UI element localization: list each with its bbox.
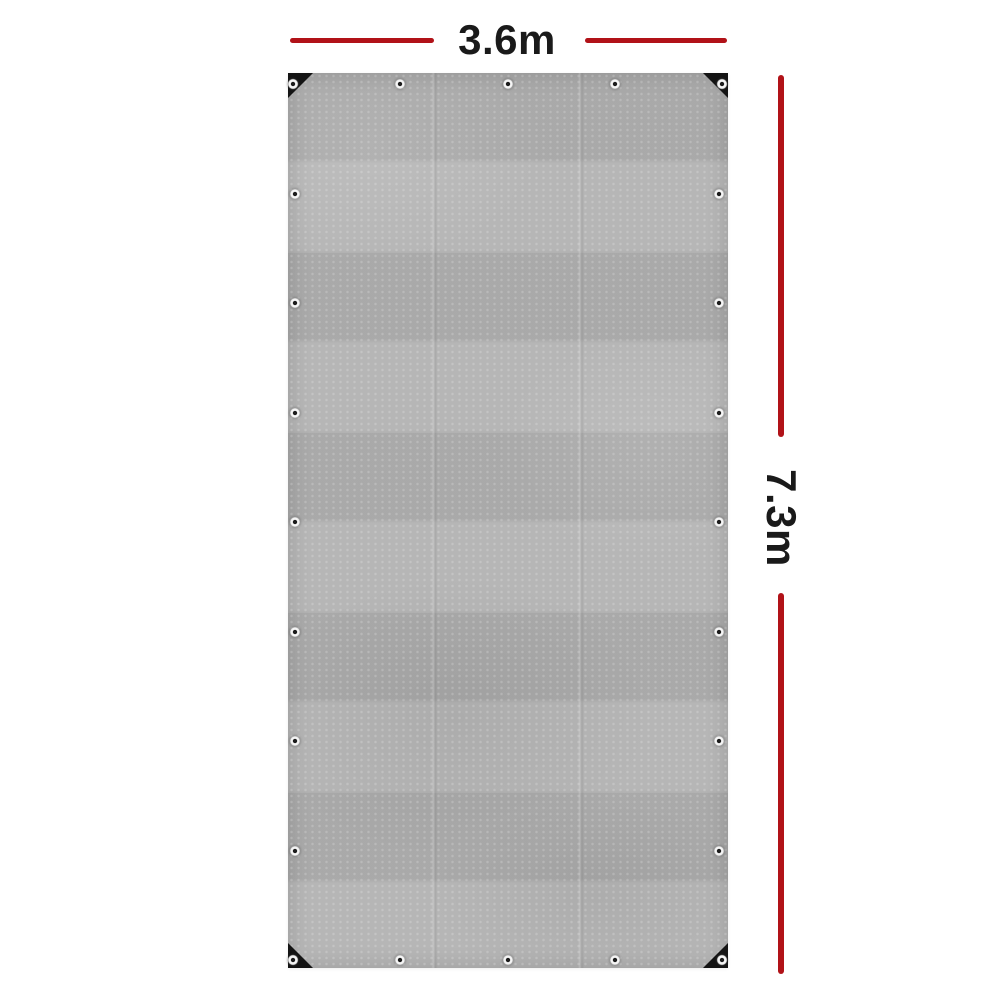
eyelet bbox=[288, 955, 299, 966]
eyelet bbox=[714, 407, 725, 418]
eyelet bbox=[290, 517, 301, 528]
width-dimension-line-right bbox=[585, 38, 727, 43]
product-image: 3.6m 7.3m bbox=[0, 0, 1000, 1000]
eyelet bbox=[714, 845, 725, 856]
width-dimension-line-left bbox=[290, 38, 434, 43]
eyelet bbox=[714, 188, 725, 199]
eyelet bbox=[290, 845, 301, 856]
width-dimension-label: 3.6m bbox=[458, 19, 556, 61]
eyelet bbox=[395, 79, 406, 90]
eyelet bbox=[609, 955, 620, 966]
height-dimension-line-top bbox=[778, 75, 784, 437]
eyelet bbox=[290, 407, 301, 418]
eyelet bbox=[395, 955, 406, 966]
tarpaulin bbox=[288, 73, 728, 968]
eyelet-layer bbox=[288, 73, 728, 968]
eyelet bbox=[502, 79, 513, 90]
eyelet bbox=[714, 736, 725, 747]
eyelet bbox=[717, 955, 728, 966]
eyelet bbox=[290, 736, 301, 747]
eyelet bbox=[714, 626, 725, 637]
eyelet bbox=[290, 188, 301, 199]
eyelet bbox=[502, 955, 513, 966]
height-dimension-line-bottom bbox=[778, 593, 784, 974]
height-dimension-label: 7.3m bbox=[760, 469, 802, 567]
eyelet bbox=[290, 626, 301, 637]
eyelet bbox=[290, 298, 301, 309]
eyelet bbox=[288, 79, 299, 90]
eyelet bbox=[717, 79, 728, 90]
eyelet bbox=[714, 517, 725, 528]
eyelet bbox=[609, 79, 620, 90]
eyelet bbox=[714, 298, 725, 309]
